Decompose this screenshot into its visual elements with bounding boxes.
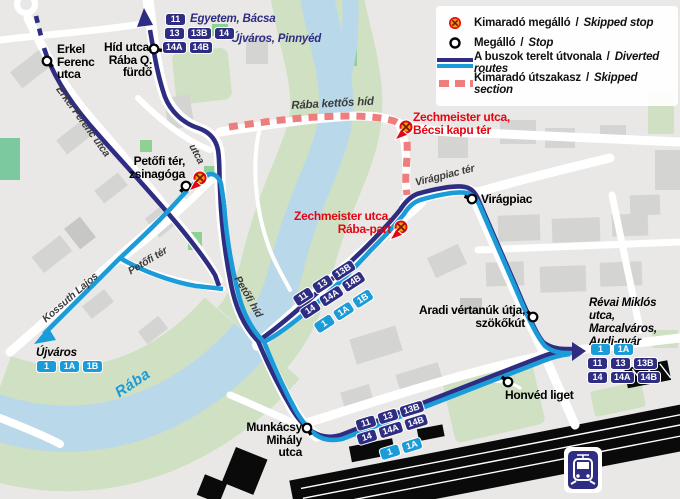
stop-label-becsi-kapu: Zechmeister utca,Bécsi kapu tér: [413, 111, 510, 136]
legend-row-skipped-section: Kimaradó útszakasz / Skipped section: [436, 75, 678, 93]
route-badge: 13B: [633, 357, 658, 370]
badge-row-north-3: 14A 14B: [162, 41, 213, 54]
route-badge: 14: [587, 371, 608, 384]
stop-label-hid: Híd utca,Rába Q.fürdő: [96, 41, 152, 79]
route-badge: 13: [610, 357, 631, 370]
stop-label-munkacsy: Munkácsy Mihályutca: [218, 421, 302, 459]
badge-row-ujvaros: 1 1A 1B: [36, 360, 103, 373]
badge-row-revai-2: 11 13 13B: [587, 357, 658, 370]
stop-label-zsinagoga: Petőfi tér,zsinagóga: [118, 155, 185, 180]
legend-row-stop: Megálló / Stop: [436, 34, 678, 52]
route-badge: 1B: [82, 360, 103, 373]
train-station-icon: [564, 447, 602, 493]
destination-north-1: Egyetem, Bácsa: [190, 13, 275, 26]
legend: Kimaradó megálló / Skipped stop Megálló …: [436, 6, 678, 106]
route-badge: 13: [164, 27, 185, 40]
route-badge: 14A: [610, 371, 635, 384]
route-badge: 14B: [637, 371, 662, 384]
stop-label-honved: Honvéd liget: [505, 389, 573, 402]
skipped-stop-icon: [436, 15, 474, 31]
skipped-section-icon: [436, 79, 474, 89]
badge-row-revai-1: 1 1A: [590, 343, 634, 356]
badge-row-north-2: 13 13B 14: [164, 27, 235, 40]
route-badge: 1: [36, 360, 57, 373]
route-badge: 11: [587, 357, 608, 370]
stop-label-viragpiac: Virágpiac: [481, 193, 532, 206]
badge-row-north-1: 11: [165, 13, 186, 26]
destination-revai: Révai Miklós utca,Marcalváros,Audi-gyár: [589, 297, 680, 349]
route-badge: 14: [214, 27, 235, 40]
diverted-routes-icon: [436, 57, 474, 69]
route-badge: 1A: [59, 360, 80, 373]
route-badge: 14A: [162, 41, 187, 54]
legend-row-diverted: A buszok terelt útvonala / Diverted rout…: [436, 54, 678, 72]
transit-diversion-map: ErkelFerencutca Híd utca,Rába Q.fürdő Pe…: [0, 0, 680, 499]
route-badge: 1A: [613, 343, 634, 356]
stop-icon: [436, 35, 474, 51]
destination-north-2: Újváros, Pinnyéd: [231, 33, 321, 46]
badge-row-revai-3: 14 14A 14B: [587, 371, 661, 384]
route-badge: 14B: [189, 41, 214, 54]
legend-row-skipped-stop: Kimaradó megálló / Skipped stop: [436, 14, 678, 32]
route-badge: 11: [165, 13, 186, 26]
stop-label-rabapart: Zechmeister utca,Rába-part: [290, 210, 391, 235]
route-badge: 13B: [187, 27, 212, 40]
destination-ujvaros: Újváros: [36, 347, 77, 360]
stop-label-erkel: ErkelFerencutca: [57, 43, 95, 81]
stop-label-aradi: Aradi vértanúk útja,szökőkút: [418, 304, 525, 329]
route-badge: 1: [590, 343, 611, 356]
